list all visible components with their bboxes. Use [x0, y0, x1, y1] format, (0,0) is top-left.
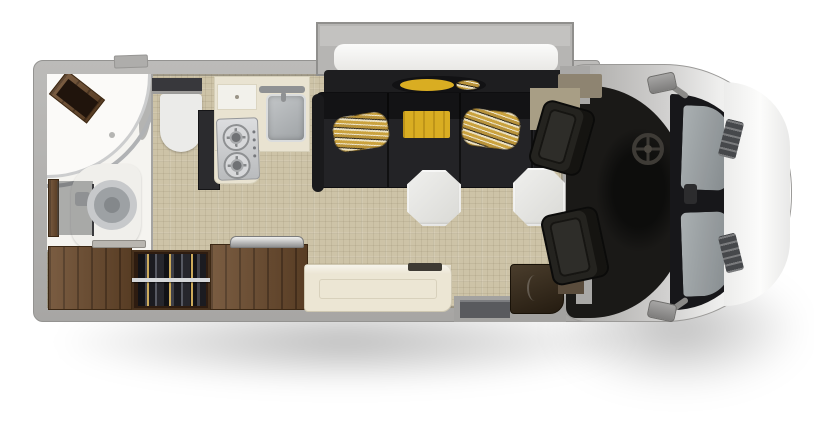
burner-top	[222, 124, 250, 152]
overhead-cabinet	[152, 78, 202, 94]
stove-knob	[253, 138, 256, 141]
cabinet-right	[210, 244, 308, 310]
rv-floorplan	[0, 0, 814, 424]
yellow-throw	[403, 111, 450, 138]
stove-knob	[253, 146, 256, 149]
bench-seat	[304, 264, 452, 312]
bathroom	[47, 74, 153, 252]
slide-out-cushion	[334, 44, 558, 72]
shower-drain	[109, 132, 115, 138]
bolster-pillow-right	[460, 107, 522, 152]
cabinet-left	[48, 246, 132, 310]
sofa-arm-left	[312, 94, 324, 192]
slide-out-roof	[320, 26, 570, 46]
hood	[724, 82, 790, 306]
pillow-through-opening	[456, 80, 480, 90]
kitchen-faucet-stem	[281, 92, 286, 102]
burner-bottom	[223, 152, 251, 180]
throw-through-opening	[400, 79, 454, 91]
counter-flap	[217, 84, 257, 110]
rearview-mirror	[684, 184, 697, 204]
bench-trim	[408, 263, 442, 271]
pocket-door	[160, 94, 202, 152]
stove-knob	[252, 130, 255, 133]
cooktop	[216, 117, 260, 180]
entry-step	[460, 300, 510, 318]
octagon-table-left	[407, 170, 461, 226]
wardrobe	[132, 250, 210, 310]
toilet	[87, 180, 137, 230]
awning-bracket	[114, 54, 148, 68]
steering-wheel	[632, 133, 664, 165]
cabinet-ledge	[92, 240, 146, 248]
kitchen-sink	[266, 94, 306, 142]
stove-knob	[253, 154, 256, 157]
metal-tray	[230, 236, 304, 248]
wardrobe-rod	[132, 278, 212, 282]
